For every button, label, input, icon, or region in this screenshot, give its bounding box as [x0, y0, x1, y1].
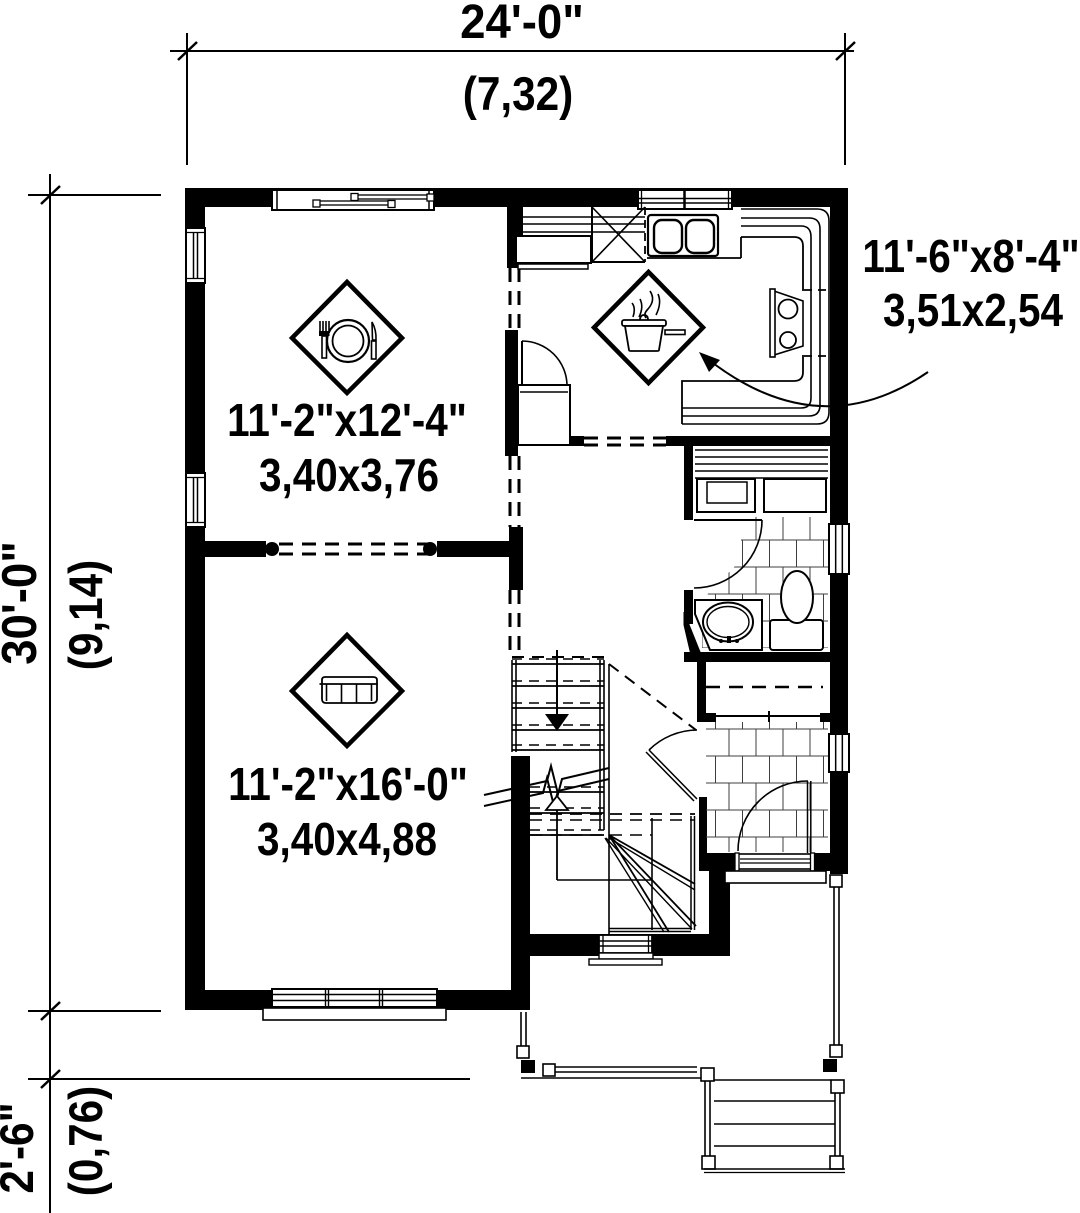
svg-text:(7,32): (7,32) — [463, 69, 573, 121]
svg-text:3,51x2,54: 3,51x2,54 — [883, 286, 1063, 337]
svg-text:2'-6": 2'-6" — [0, 1102, 44, 1193]
svg-text:11'-6"x8'-4": 11'-6"x8'-4" — [862, 232, 1079, 283]
svg-text:11'-2"x16'-0": 11'-2"x16'-0" — [228, 760, 468, 811]
svg-text:3,40x4,88: 3,40x4,88 — [257, 815, 437, 866]
svg-text:11'-2"x12'-4": 11'-2"x12'-4" — [227, 396, 467, 447]
svg-text:24'-0": 24'-0" — [460, 0, 584, 48]
svg-text:30'-0": 30'-0" — [0, 541, 47, 665]
svg-text:(0,76): (0,76) — [61, 1086, 113, 1196]
svg-text:3,40x3,76: 3,40x3,76 — [259, 451, 439, 502]
svg-text:(9,14): (9,14) — [61, 560, 113, 670]
